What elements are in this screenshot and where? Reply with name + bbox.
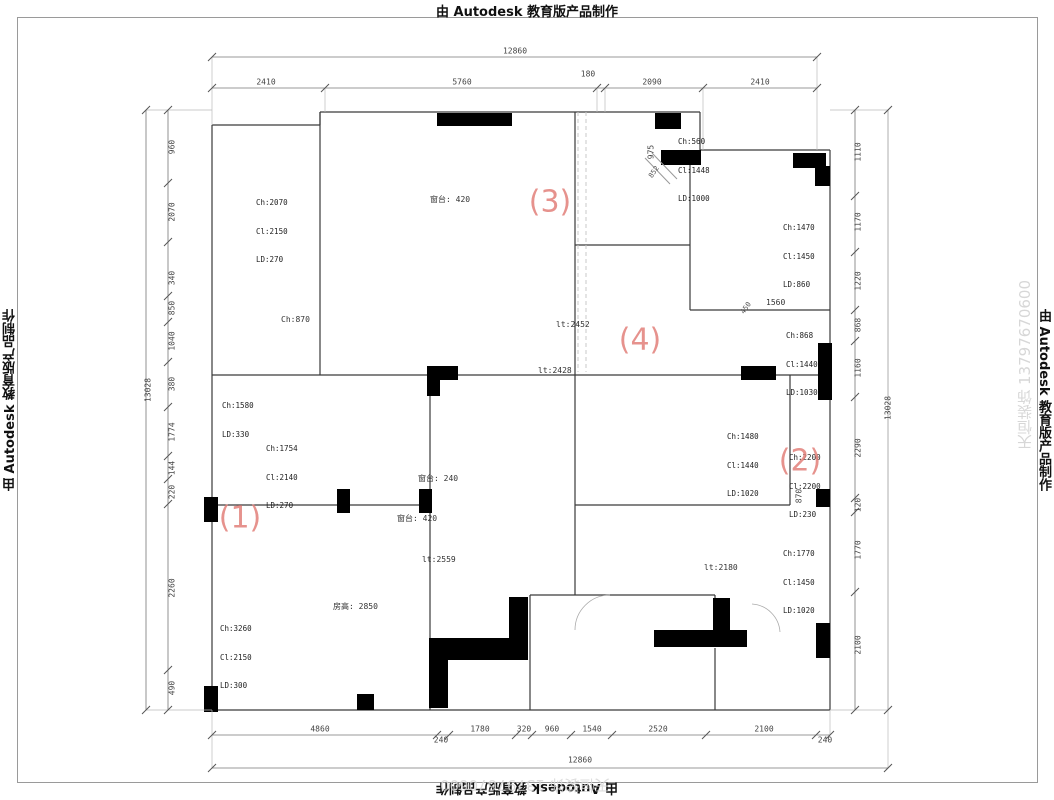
- window-note-line: Cl:1450: [783, 252, 815, 262]
- dim-left-seg: 220: [168, 485, 177, 499]
- window-note-line: Cl:1448: [678, 166, 710, 176]
- label-height-2452: lt:2452: [556, 320, 590, 329]
- dimension-lines: [146, 57, 888, 768]
- window-note-line: Ch:1580: [222, 401, 254, 411]
- label-room-height: 房高: 2850: [333, 602, 378, 611]
- window-note: Ch:1470 Cl:1450 LD:860: [783, 204, 815, 309]
- dim-left-seg: 850: [168, 301, 177, 315]
- dim-right-total: 13028: [884, 396, 893, 420]
- red-mark-2: (2): [779, 444, 822, 479]
- dim-left-seg: 1040: [168, 331, 177, 350]
- window-note-line: Cl:2150: [220, 653, 252, 663]
- dim-top-seg: 180: [581, 70, 595, 79]
- dim-bottom-seg: 960: [545, 725, 559, 734]
- window-note: Ch:3260 Cl:2150 LD:300: [220, 605, 252, 710]
- dim-bottom-seg: 240: [818, 736, 832, 745]
- label-height-2559: lt:2559: [422, 555, 456, 564]
- window-note: Ch:868 Cl:1440 LD:1030: [786, 312, 818, 417]
- dim-right-seg: 868: [854, 318, 863, 332]
- window-note-line: Ch:3260: [220, 624, 252, 634]
- window-note-line: Ch:1754: [266, 444, 298, 454]
- dashed-lines: [578, 112, 586, 372]
- dim-bottom-seg: 4860: [310, 725, 329, 734]
- dim-left-seg: 380: [168, 377, 177, 391]
- window-note-line: LD:300: [220, 681, 252, 691]
- window-note: Ch:560 Cl:1448 LD:1000: [678, 118, 710, 223]
- window-note-line: LD:270: [266, 501, 298, 511]
- dim-left-seg: 2070: [168, 202, 177, 221]
- window-note-line: LD:270: [256, 255, 288, 265]
- window-note-line: LD:230: [789, 510, 821, 520]
- dim-top-seg: 2090: [642, 78, 661, 87]
- window-note: Ch:1754 Cl:2140 LD:270: [266, 425, 298, 530]
- floorplan-linework: [0, 0, 1054, 800]
- dim-left-seg: 960: [168, 140, 177, 154]
- dim-right-seg: 1220: [854, 271, 863, 290]
- dim-top-total: 12860: [503, 47, 527, 56]
- dim-left-seg: 1774: [168, 422, 177, 441]
- door-arcs: [575, 595, 780, 632]
- dim-bottom-total: 12860: [568, 756, 592, 765]
- window-note-line: Cl:2140: [266, 473, 298, 483]
- window-note-line: Ch:1470: [783, 223, 815, 233]
- floorplan-canvas: 由 Autodesk 教育版产品制作 由 Autodesk 教育版产品制作 由 …: [0, 0, 1054, 800]
- watermark-bottom: 天恒装饰 13797670600: [440, 775, 610, 796]
- window-note-line: Ch:2070: [256, 198, 288, 208]
- dim-right-seg: 2100: [854, 635, 863, 654]
- window-note-line: Cl:1450: [783, 578, 815, 588]
- label-sill-mid: 窗台: 240: [418, 474, 458, 483]
- red-mark-3: (3): [529, 185, 572, 220]
- dim-bottom-seg: 240: [434, 736, 448, 745]
- dim-right-seg: 1770: [854, 540, 863, 559]
- dim-bottom-seg: 1780: [470, 725, 489, 734]
- dim-top-seg: 2410: [750, 78, 769, 87]
- label-dim-975: 975: [647, 145, 656, 159]
- window-note-line: Ch:560: [678, 137, 710, 147]
- label-height-2428: lt:2428: [538, 366, 572, 375]
- window-note-line: LD:1030: [786, 388, 818, 398]
- dim-left-total: 13028: [144, 378, 153, 402]
- window-note-line: LD:330: [222, 430, 254, 440]
- label-dim-1560: 1560: [766, 298, 785, 307]
- window-note: Ch:1480 Cl:1440 LD:1020: [727, 413, 759, 518]
- label-dim-870: 870: [795, 489, 804, 503]
- window-note: Ch:2070 Cl:2150 LD:270: [256, 179, 288, 284]
- label-sill-top: 窗台: 420: [430, 195, 470, 204]
- window-note-line: LD:1020: [783, 606, 815, 616]
- dim-bottom-seg: 2520: [648, 725, 667, 734]
- dim-right-seg: 1110: [854, 142, 863, 161]
- label-ch870: Ch:870: [281, 315, 310, 324]
- autodesk-banner-right: 由 Autodesk 教育版产品制作: [1034, 309, 1053, 491]
- window-note-line: Cl:1440: [727, 461, 759, 471]
- window-note-line: Ch:1770: [783, 549, 815, 559]
- autodesk-banner-left: 由 Autodesk 教育版产品制作: [1, 309, 20, 491]
- dim-left-seg: 144: [168, 461, 177, 475]
- dim-bottom-seg: 320: [517, 725, 531, 734]
- watermark-right: 天恒装饰 13797670600: [1014, 280, 1035, 450]
- window-note-line: Cl:2150: [256, 227, 288, 237]
- label-height-2180: lt:2180: [704, 563, 738, 572]
- window-note-line: LD:1000: [678, 194, 710, 204]
- dim-left-seg: 340: [168, 271, 177, 285]
- dim-right-seg: 1160: [854, 358, 863, 377]
- dim-right-seg: 1170: [854, 212, 863, 231]
- dim-bottom-seg: 2100: [754, 725, 773, 734]
- dim-top-seg: 5760: [452, 78, 471, 87]
- window-note-line: LD:860: [783, 280, 815, 290]
- window-note-line: LD:1020: [727, 489, 759, 499]
- dim-top-seg: 2410: [256, 78, 275, 87]
- dim-left-seg: 490: [168, 681, 177, 695]
- red-mark-1: (1): [219, 501, 262, 536]
- autodesk-banner-top: 由 Autodesk 教育版产品制作: [436, 1, 618, 20]
- window-note-line: Ch:1480: [727, 432, 759, 442]
- red-mark-4: (4): [619, 323, 662, 358]
- label-sill-low: 窗台: 420: [397, 514, 437, 523]
- dim-left-seg: 2260: [168, 578, 177, 597]
- dim-right-seg: 120: [854, 498, 863, 512]
- window-note: Ch:1770 Cl:1450 LD:1020: [783, 530, 815, 635]
- window-note-line: Cl:1440: [786, 360, 818, 370]
- dimension-ticks: [142, 53, 892, 772]
- window-note-line: Ch:868: [786, 331, 818, 341]
- extension-lines: [146, 57, 888, 768]
- dim-right-seg: 2290: [854, 438, 863, 457]
- dim-bottom-seg: 1540: [582, 725, 601, 734]
- window-note: Ch:1580 LD:330: [222, 382, 254, 458]
